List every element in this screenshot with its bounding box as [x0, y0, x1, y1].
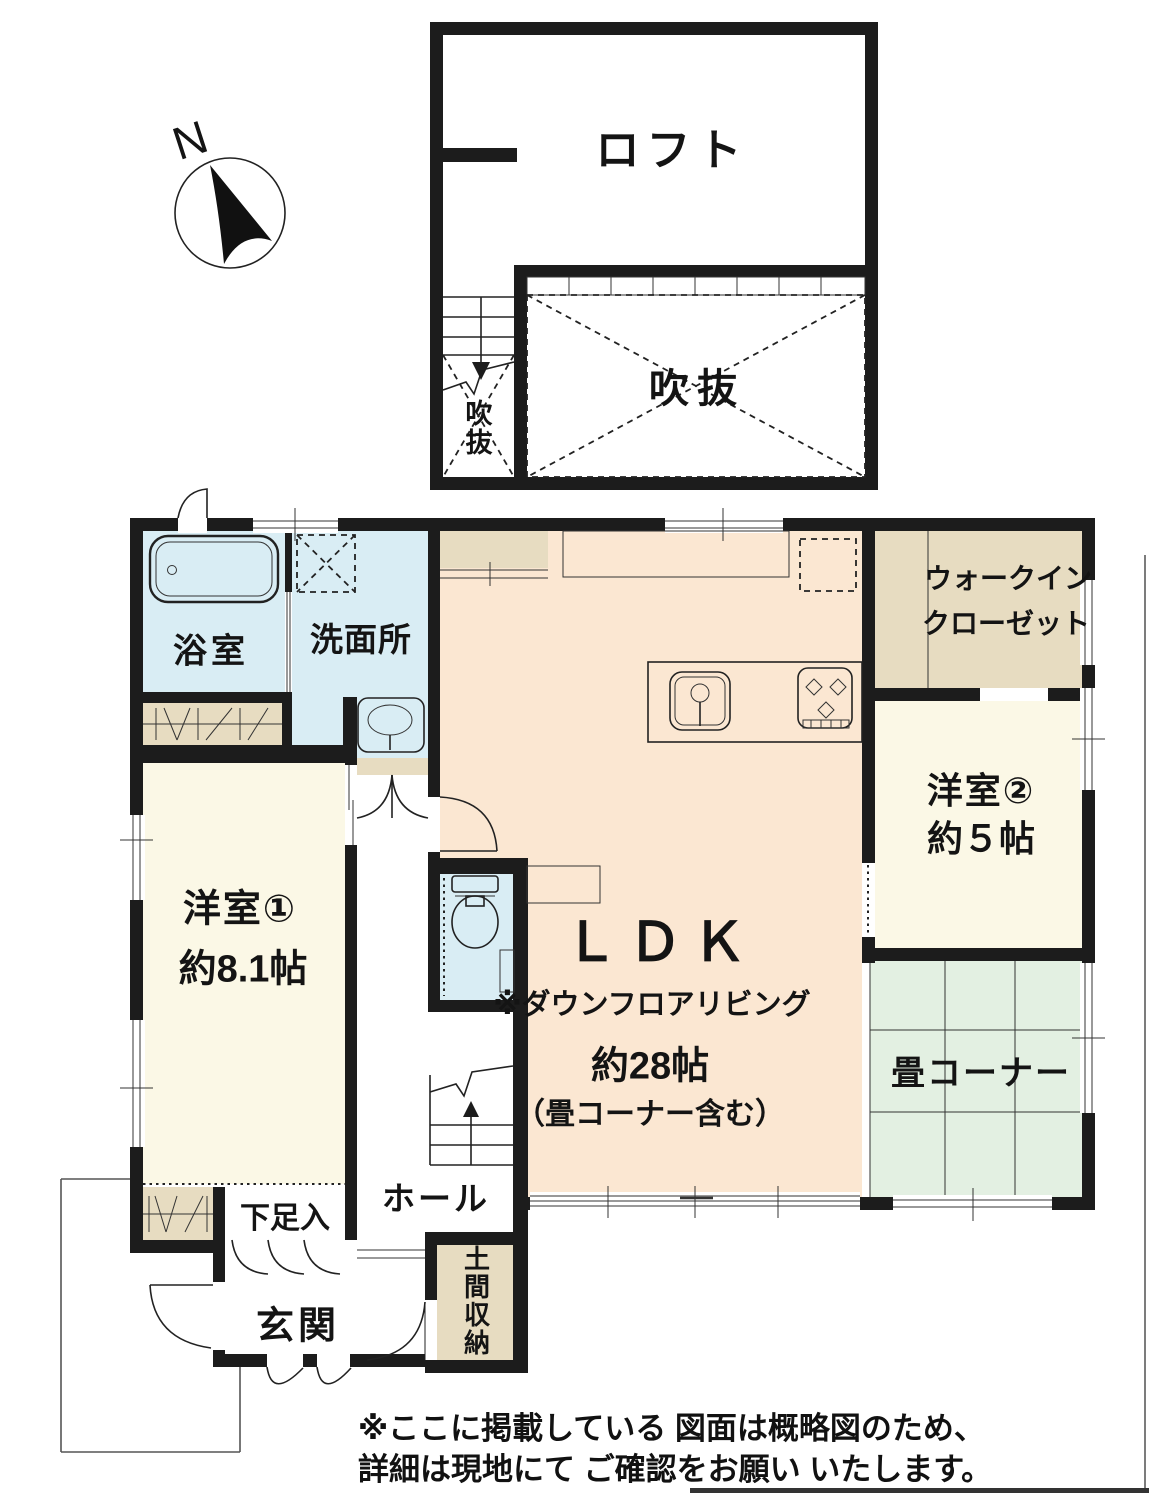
bathroom-label: 浴室 — [173, 624, 249, 673]
ldk-label: ＬＤＫ — [564, 898, 756, 977]
western1-size: 約8.1帖 — [179, 938, 308, 993]
floor-plan-drawing — [0, 0, 1149, 1503]
tatami-corner-label: 畳コーナー — [891, 1046, 1071, 1095]
ldk-size: 約28帖 — [591, 1035, 709, 1090]
western2-label: 洋室② — [927, 762, 1035, 814]
washroom-threshold — [357, 758, 428, 775]
washroom-label: 洗面所 — [310, 613, 412, 661]
void-stair-label: 吹抜 — [458, 399, 497, 457]
stair-down-arrow — [472, 362, 490, 380]
western2-size: 約５帖 — [927, 810, 1035, 862]
disclaimer-line1: ※ここに掲載している 図面は概略図のため、 — [358, 1403, 985, 1448]
kitchen-cabinet — [440, 531, 548, 568]
doma-storage-label: 土間収納 — [458, 1245, 495, 1357]
loft-stairs — [443, 297, 514, 394]
western1-label: 洋室① — [183, 878, 297, 933]
ldk-size-note: （畳コーナー含む） — [515, 1089, 785, 1133]
compass-icon — [175, 158, 285, 268]
disclaimer-line2: 詳細は現地にて ご確認をお願い いたします。 — [358, 1444, 992, 1489]
shoe-cabinet-label: 下足入 — [240, 1193, 330, 1237]
ldk-note: ※ダウンフロアリビング — [493, 981, 810, 1023]
floor-plan: N ロフト 吹抜 吹抜 浴室 洗面所 洋室① 約8.1帖 ウォークイン クローゼ… — [0, 0, 1149, 1503]
void-main-label: 吹抜 — [649, 356, 745, 414]
wic-label-line1: ウォークイン — [924, 557, 1092, 597]
wic-label-line2: クローゼット — [922, 602, 1090, 642]
stair-up-arrow — [463, 1101, 479, 1117]
loft-label: ロフト — [596, 114, 749, 178]
loft-block — [430, 22, 878, 490]
entrance-label: 玄関 — [256, 1295, 340, 1350]
hall-label: ホール — [382, 1172, 490, 1220]
